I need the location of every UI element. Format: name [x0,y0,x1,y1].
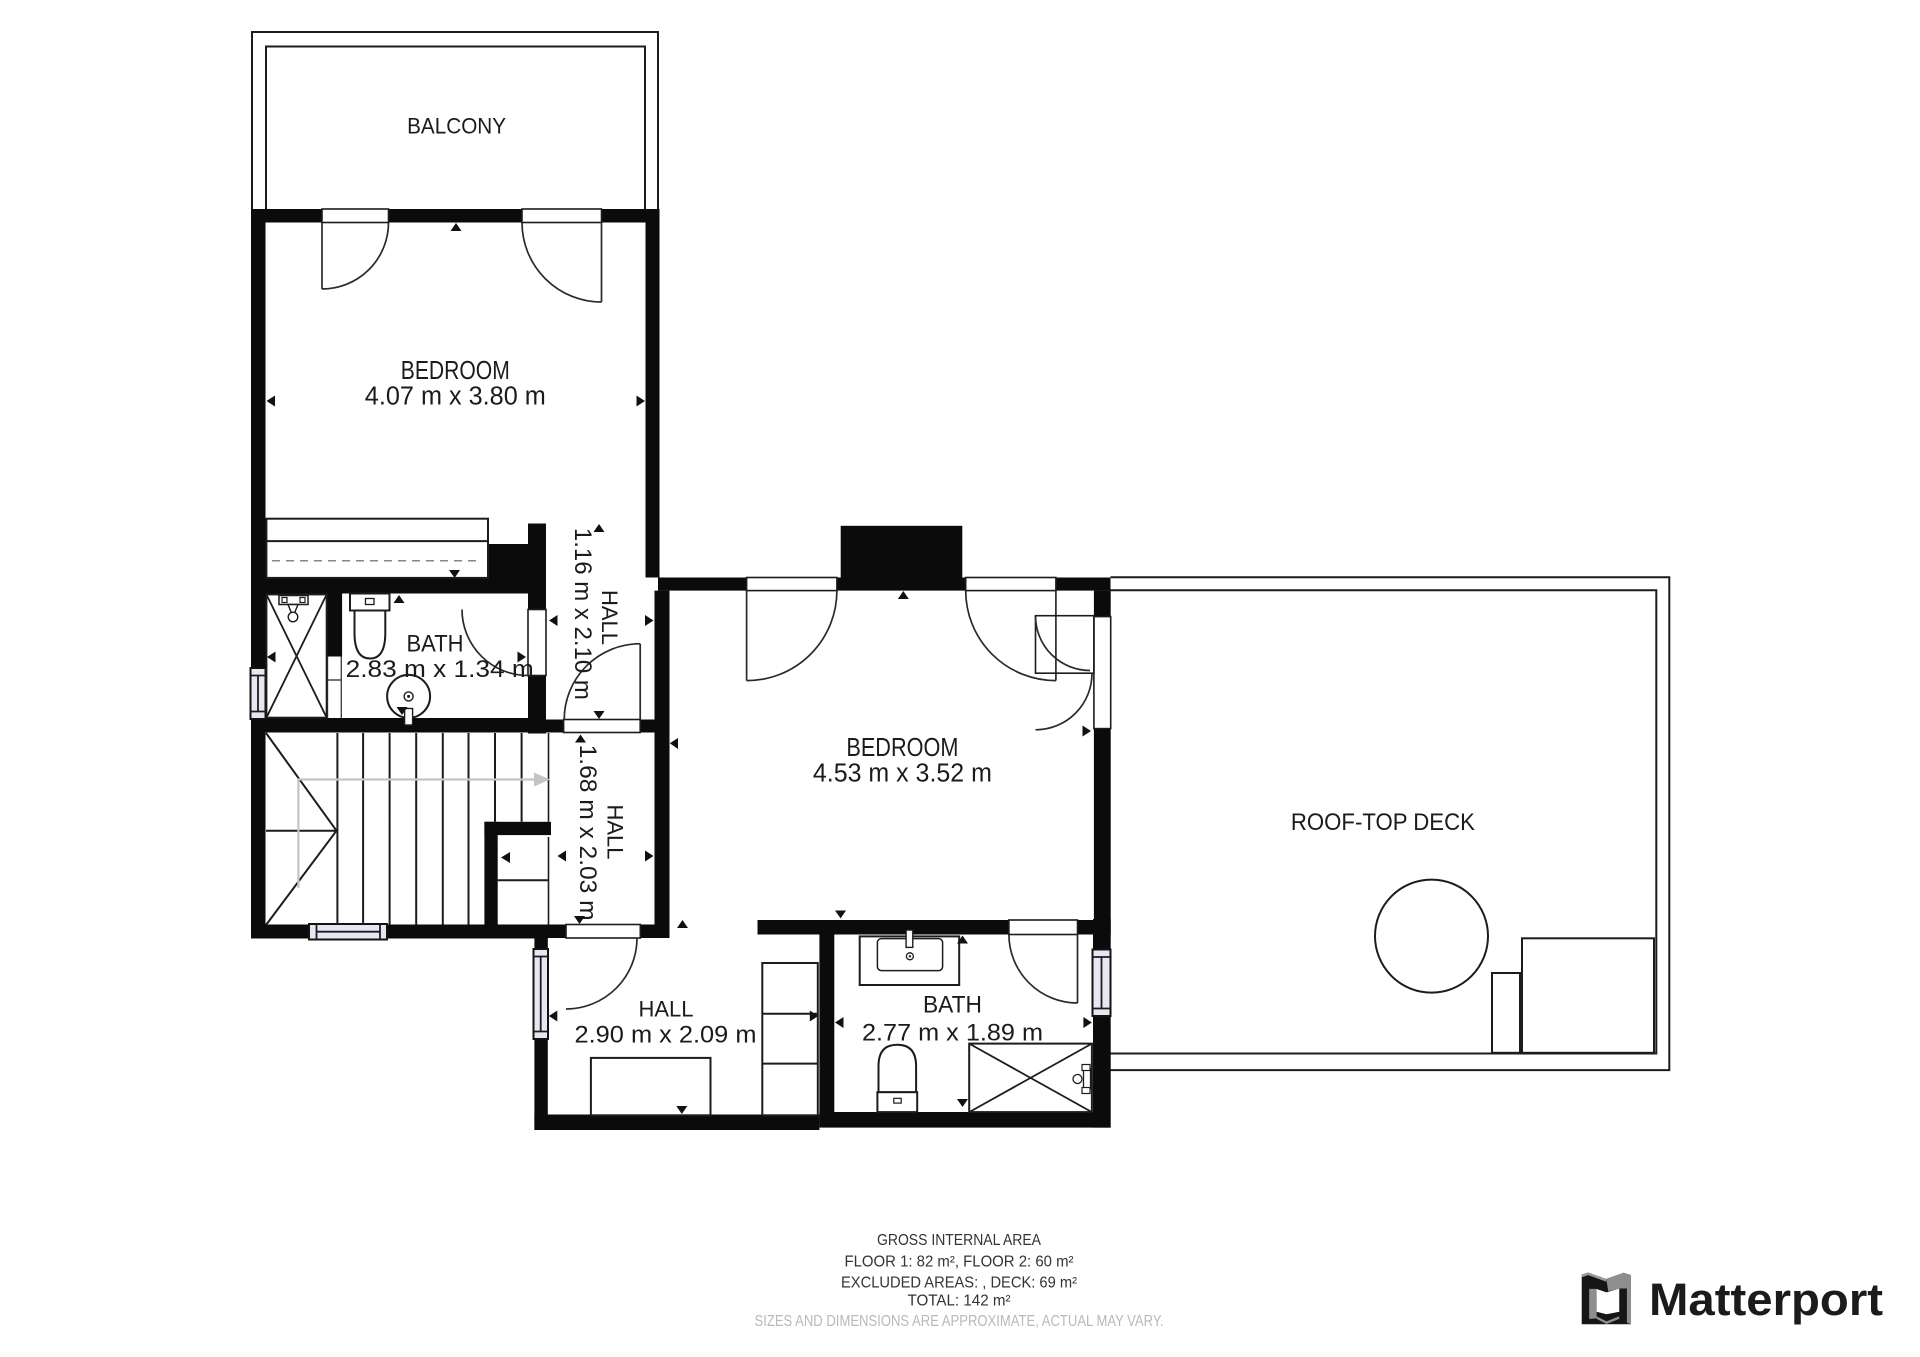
svg-text:ROOF-TOP DECK: ROOF-TOP DECK [1291,809,1475,836]
svg-text:4.53 m x 3.52 m: 4.53 m x 3.52 m [813,760,992,788]
svg-text:BATH: BATH [923,992,982,1019]
svg-text:FLOOR 1: 82 m², FLOOR 2: 60 m²: FLOOR 1: 82 m², FLOOR 2: 60 m² [845,1254,1074,1271]
svg-text:HALL: HALL [639,997,694,1022]
svg-text:HALL: HALL [597,590,622,645]
svg-text:1.68 m x 2.03 m: 1.68 m x 2.03 m [574,745,601,921]
svg-text:BEDROOM: BEDROOM [846,734,958,762]
svg-text:2.77 m x 1.89 m: 2.77 m x 1.89 m [862,1019,1043,1046]
svg-text:BATH: BATH [407,631,464,658]
svg-text:SIZES AND DIMENSIONS ARE APPRO: SIZES AND DIMENSIONS ARE APPROXIMATE, AC… [755,1313,1164,1330]
svg-text:TOTAL: 142 m²: TOTAL: 142 m² [908,1293,1011,1310]
svg-text:HALL: HALL [603,805,628,860]
svg-text:1.16 m x 2.10 m: 1.16 m x 2.10 m [569,528,596,700]
svg-text:4.07 m x 3.80 m: 4.07 m x 3.80 m [365,383,546,411]
svg-text:2.90 m x 2.09 m: 2.90 m x 2.09 m [575,1022,757,1049]
svg-text:EXCLUDED AREAS: , DECK: 69 m²: EXCLUDED AREAS: , DECK: 69 m² [841,1275,1077,1292]
svg-text:BEDROOM: BEDROOM [401,357,510,385]
svg-text:BALCONY: BALCONY [407,114,506,139]
svg-text:Matterport: Matterport [1649,1274,1883,1325]
svg-text:2.83 m x 1.34 m: 2.83 m x 1.34 m [346,656,534,683]
svg-text:GROSS INTERNAL AREA: GROSS INTERNAL AREA [877,1232,1042,1249]
